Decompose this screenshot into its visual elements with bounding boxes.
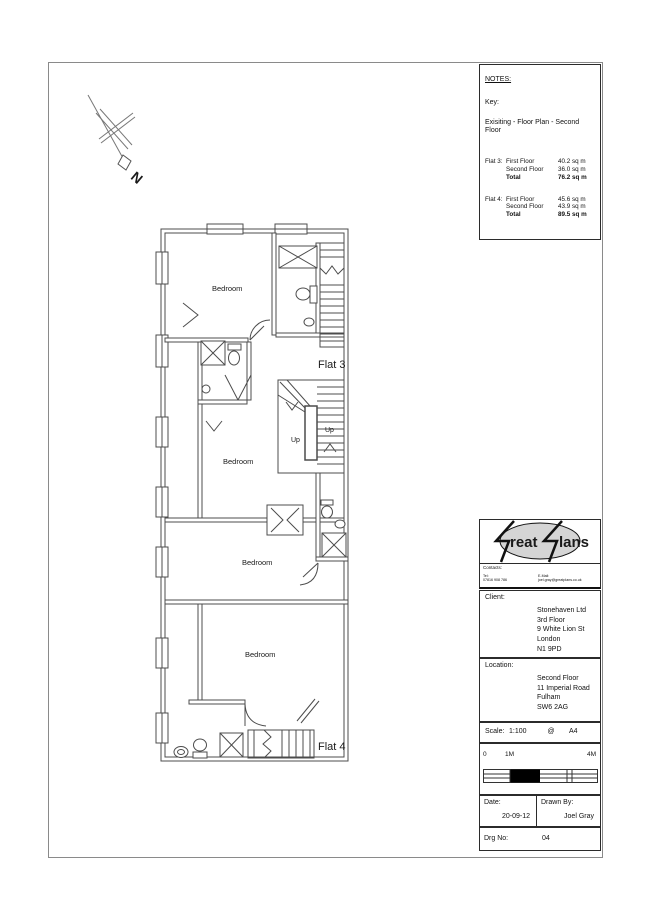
flat3-row1-label: First Floor (506, 158, 558, 166)
flat3-row1-value: 40.2 sq m (558, 158, 595, 166)
contacts-label: Contacts: (483, 565, 597, 571)
scale-row: Scale: 1:100 @ A4 (479, 722, 601, 743)
scale-tick-0: 0 (483, 751, 487, 759)
flat3-name: Flat 3: (485, 158, 506, 166)
date-drawn-row: Date: 20-09-12 Drawn By: Joel Gray (479, 795, 601, 827)
date-value: 20-09-12 (502, 813, 530, 822)
scale-at: @ (541, 728, 561, 737)
contacts-strip: Contacts: Tel: 07816 908 786 E-Mail: joe… (479, 563, 601, 589)
window-icon (156, 252, 168, 743)
tel-value: 07816 908 786 (483, 578, 538, 583)
scale-bar (483, 769, 598, 784)
flat4-row1-value: 45.6 sq m (558, 196, 595, 204)
drawn-by-cell: Drawn By: Joel Gray (537, 796, 600, 826)
flat4-row2-label: Second Floor (506, 203, 558, 211)
flat3-total-label: Total (506, 174, 558, 182)
flat4-name: Flat 4: (485, 196, 506, 204)
client-label: Client: (485, 594, 595, 603)
drg-no-value: 04 (542, 835, 550, 844)
location-line: Second Floor (537, 675, 595, 684)
drawn-by-value: Joel Gray (564, 813, 594, 822)
contacts-email: E-Mail: joel.gray@greatplans.co.uk (538, 574, 597, 583)
drawn-by-label: Drawn By: (541, 799, 573, 808)
drg-no-label: Drg No: (484, 835, 508, 844)
drg-no-row: Drg No: 04 (479, 827, 601, 851)
paper-size: A4 (569, 728, 578, 737)
notes-panel: NOTES: Key: Exisiting - Floor Plan - Sec… (479, 64, 601, 240)
flat3-row2-value: 36.0 sq m (558, 166, 595, 174)
logo-text-2: lans (559, 534, 589, 551)
flat4-total-label: Total (506, 211, 558, 219)
wardrobe-icon (267, 505, 303, 535)
contacts-tel: Tel: 07816 908 786 (483, 574, 538, 583)
scale-bar-box: 0 1M 4M (479, 743, 601, 795)
drawing-sheet: N Bedroom Bedroom Bedroom Bedroom Flat 3… (0, 0, 650, 919)
client-line: Stonehaven Ltd (537, 607, 595, 616)
key-label: Key: (485, 99, 595, 108)
flat4-areas: Flat 4: First Floor 45.6 sq m Second Flo… (485, 196, 595, 220)
flat4-label: Flat 4 (318, 741, 346, 753)
location-box: Location: Second Floor 11 Imperial Road … (479, 658, 601, 722)
scale-tick-4m: 4M (587, 751, 596, 759)
bedroom2-label: Bedroom (223, 457, 253, 466)
location-label: Location: (485, 662, 595, 671)
interior-walls (165, 233, 348, 704)
flat4-row1-label: First Floor (506, 196, 558, 204)
bedroom1-label: Bedroom (212, 284, 242, 293)
client-line: 9 White Lion St (537, 626, 595, 635)
bedroom3-label: Bedroom (242, 558, 272, 567)
scale-tick-1m: 1M (505, 751, 514, 759)
logo-text-1: reat (510, 534, 538, 551)
client-box: Client: Stonehaven Ltd 3rd Floor 9 White… (479, 590, 601, 658)
client-address: Stonehaven Ltd 3rd Floor 9 White Lion St… (537, 607, 595, 655)
scale-value: 1:100 (509, 728, 541, 737)
location-line: 11 Imperial Road (537, 685, 595, 694)
stairs-top (320, 243, 344, 347)
company-logo: reat lans (479, 519, 601, 564)
flat3-areas: Flat 3: First Floor 40.2 sq m Second Flo… (485, 158, 595, 182)
bedroom4-label: Bedroom (245, 650, 275, 659)
date-label: Date: (484, 799, 501, 808)
location-line: Fulham (537, 694, 595, 703)
flat3-row2-label: Second Floor (506, 166, 558, 174)
plan-subtitle: Exisiting - Floor Plan - Second Floor (485, 119, 595, 137)
date-cell: Date: 20-09-12 (480, 796, 537, 826)
up-label-1: Up (325, 427, 334, 434)
north-label: N (128, 168, 146, 187)
location-address: Second Floor 11 Imperial Road Fulham SW6… (537, 675, 595, 713)
flat3-total-value: 76.2 sq m (558, 174, 595, 182)
client-line: N1 9PD (537, 646, 595, 655)
up-label-2: Up (291, 437, 300, 444)
scale-label: Scale: (485, 728, 509, 737)
location-line: SW6 2AG (537, 704, 595, 713)
notes-title: NOTES: (485, 76, 595, 85)
email-value: joel.gray@greatplans.co.uk (538, 578, 597, 583)
client-line: London (537, 636, 595, 645)
flat4-total-value: 89.5 sq m (558, 211, 595, 219)
stairs-mid (278, 380, 344, 473)
flat3-label: Flat 3 (318, 359, 346, 371)
client-line: 3rd Floor (537, 617, 595, 626)
stairs-bottom (248, 730, 314, 758)
north-arrow-icon (88, 95, 135, 170)
flat4-row2-value: 43.9 sq m (558, 203, 595, 211)
